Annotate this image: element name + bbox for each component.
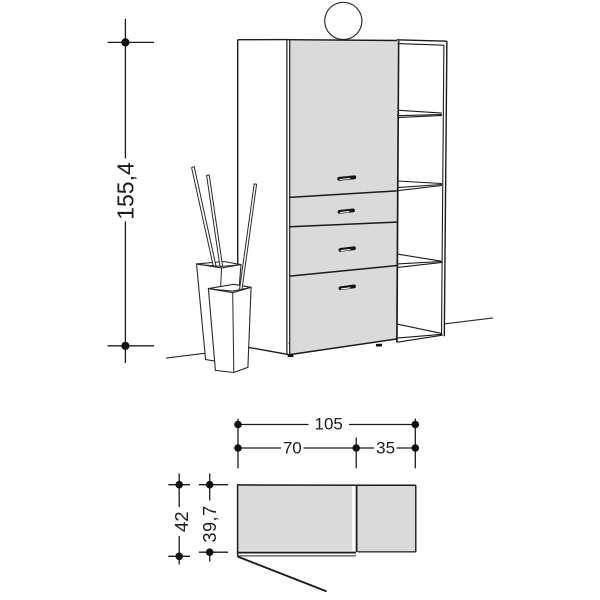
svg-text:39,7: 39,7	[199, 505, 220, 542]
svg-text:42: 42	[171, 511, 192, 532]
svg-text:155,4: 155,4	[113, 162, 139, 220]
svg-text:35: 35	[376, 438, 395, 457]
svg-text:105: 105	[315, 415, 343, 434]
svg-text:70: 70	[283, 438, 302, 457]
